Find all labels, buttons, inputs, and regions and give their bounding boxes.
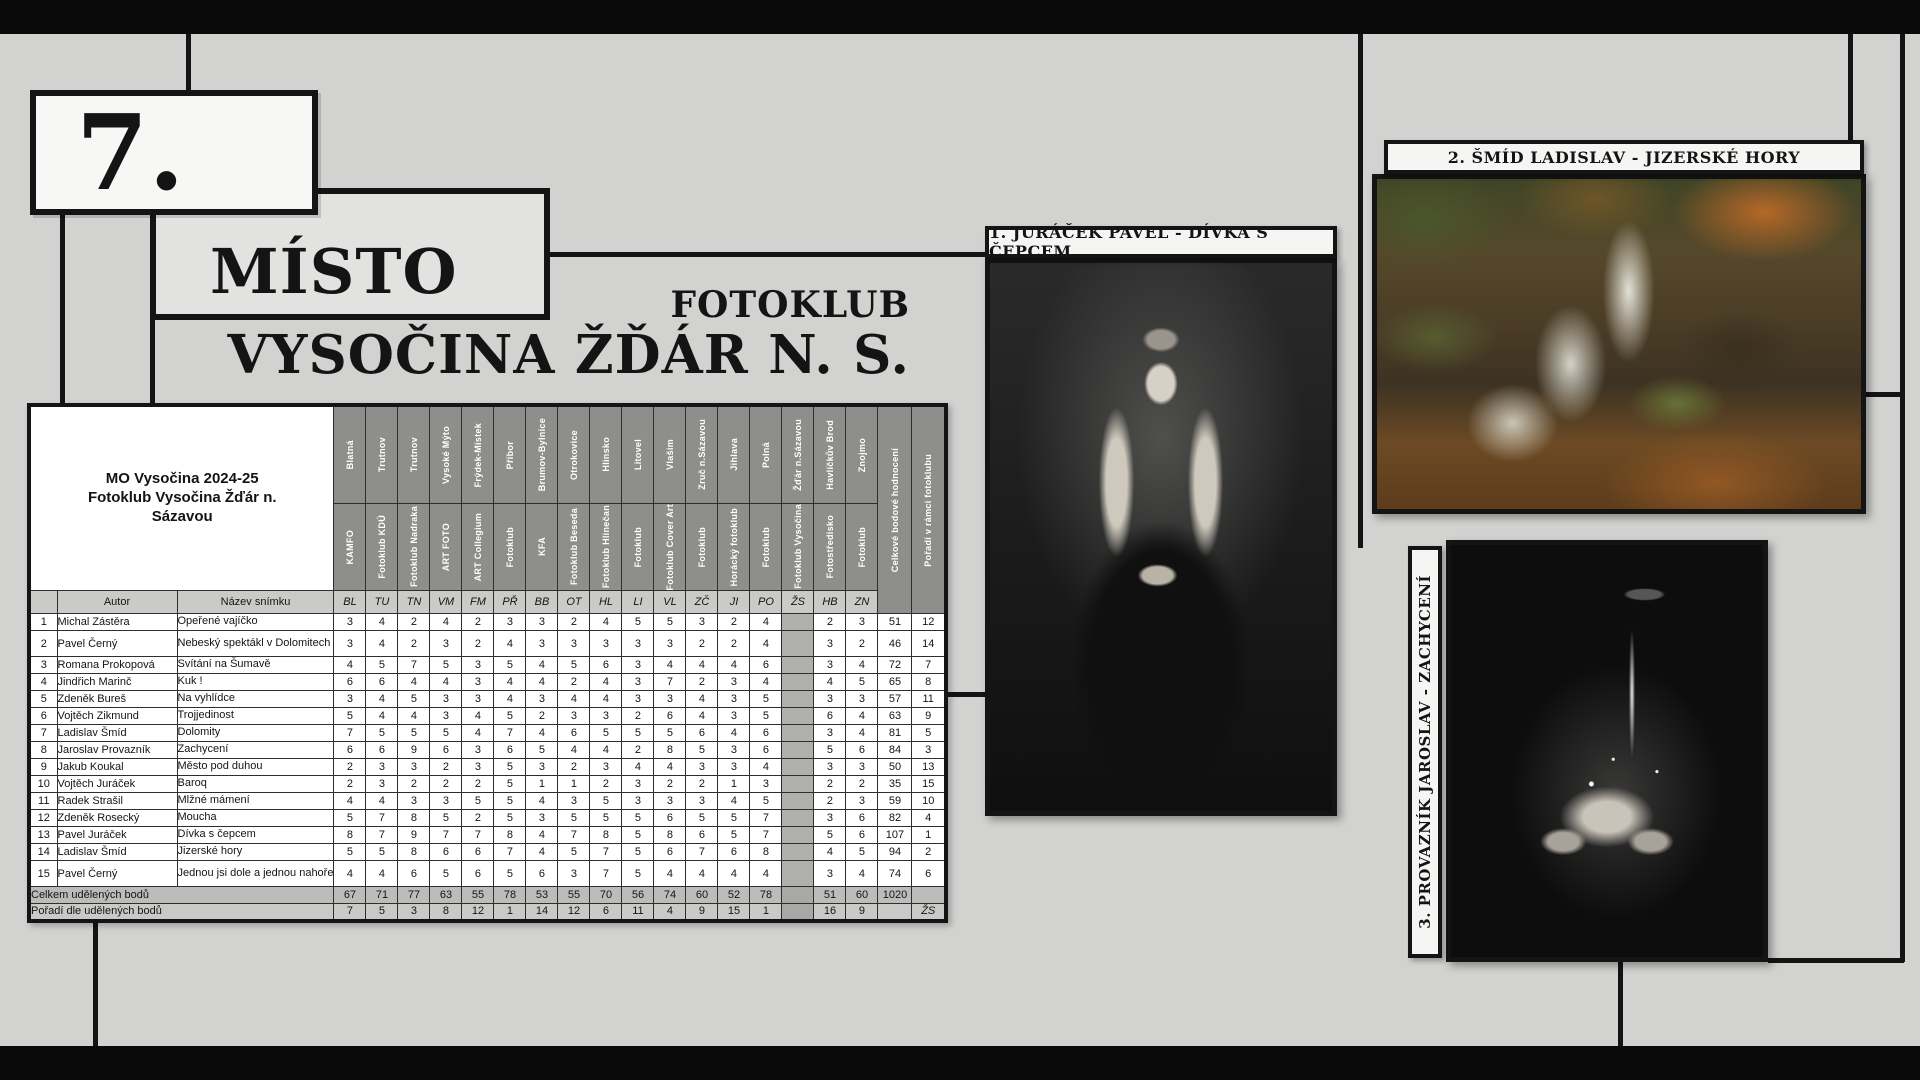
summary-value: 78 <box>750 887 782 904</box>
column-club-header: Fotoklub <box>622 503 654 591</box>
connector-line <box>1848 34 1853 140</box>
summary-value: 60 <box>846 887 878 904</box>
score-cell: 5 <box>398 691 430 708</box>
author-cell: Jakub Koukal <box>57 759 177 776</box>
score-cell: 7 <box>462 827 494 844</box>
table-row: 11 Radek Strašil Mlžné mámení44335543533… <box>29 793 946 810</box>
score-cell: 8 <box>590 827 622 844</box>
summary-value: 1 <box>494 904 526 921</box>
score-cell: 5 <box>366 657 398 674</box>
score-cell: 4 <box>846 861 878 887</box>
score-cell: 6 <box>846 742 878 759</box>
score-cell: 2 <box>846 776 878 793</box>
score-cell: 6 <box>846 827 878 844</box>
photo2-frame <box>1372 174 1866 514</box>
table-title-cell: MO Vysočina 2024-25 Fotoklub Vysočina Žď… <box>29 405 334 591</box>
score-cell: 2 <box>334 759 366 776</box>
score-cell: 5 <box>590 725 622 742</box>
score-cell: 5 <box>494 657 526 674</box>
score-cell: 3 <box>366 776 398 793</box>
row-number: 10 <box>29 776 57 793</box>
score-cell: 3 <box>622 674 654 691</box>
score-cell: 2 <box>846 631 878 657</box>
summary-value: 74 <box>654 887 686 904</box>
score-cell: 3 <box>462 742 494 759</box>
rank-cell: 10 <box>912 793 946 810</box>
score-cell: 4 <box>622 759 654 776</box>
summary-value: 9 <box>686 904 718 921</box>
score-cell: 5 <box>622 844 654 861</box>
score-cell: 4 <box>750 631 782 657</box>
score-cell: 3 <box>398 793 430 810</box>
rank-cell: 3 <box>912 742 946 759</box>
photo3-title-bar: 3. PROVAZNÍK JAROSLAV - ZACHYCENÍ <box>1408 546 1442 958</box>
score-cell: 5 <box>654 725 686 742</box>
score-cell: 3 <box>526 631 558 657</box>
score-cell: 3 <box>366 759 398 776</box>
column-city-header: Zruč n.Sázavou <box>686 405 718 503</box>
score-cell: 4 <box>654 657 686 674</box>
summary-value: 7 <box>334 904 366 921</box>
table-row: 15 Pavel Černý Jednou jsi dole a jednou … <box>29 861 946 887</box>
column-abbr: TU <box>366 591 398 614</box>
score-cell: 4 <box>846 657 878 674</box>
author-cell: Jaroslav Provazník <box>57 742 177 759</box>
score-cell: 7 <box>686 844 718 861</box>
score-cell: 3 <box>814 691 846 708</box>
photo3-frame <box>1446 540 1768 962</box>
column-city-header: Brumov-Bylnice <box>526 405 558 503</box>
score-cell: 6 <box>366 742 398 759</box>
score-cell: 4 <box>750 674 782 691</box>
score-cell: 6 <box>590 657 622 674</box>
score-cell: 3 <box>718 708 750 725</box>
score-cell: 4 <box>590 674 622 691</box>
photo1-frame <box>985 258 1337 816</box>
rank-cell: 9 <box>912 708 946 725</box>
score-cell: 2 <box>558 614 590 631</box>
score-cell: 7 <box>750 827 782 844</box>
photo-name-cell: Baroq <box>177 776 334 793</box>
column-club-header: Fotostředisko <box>814 503 846 591</box>
row-number: 11 <box>29 793 57 810</box>
score-cell: 5 <box>494 810 526 827</box>
total-cell: 46 <box>878 631 912 657</box>
home-club-empty-cell <box>782 657 814 674</box>
score-cell: 2 <box>462 776 494 793</box>
score-cell: 3 <box>462 759 494 776</box>
score-cell: 7 <box>590 861 622 887</box>
connector-line <box>186 34 191 92</box>
photo-name-cell: Opeřené vajíčko <box>177 614 334 631</box>
row-number: 7 <box>29 725 57 742</box>
score-cell: 4 <box>494 631 526 657</box>
score-cell: 3 <box>654 793 686 810</box>
column-club-header: KFA <box>526 503 558 591</box>
column-club-header: Fotoklub <box>846 503 878 591</box>
column-city-header: Žďár n.Sázavou <box>782 405 814 503</box>
score-cell: 9 <box>398 742 430 759</box>
score-cell: 3 <box>462 691 494 708</box>
score-cell: 5 <box>814 827 846 844</box>
score-cell: 5 <box>686 742 718 759</box>
score-cell: 4 <box>590 614 622 631</box>
score-cell: 5 <box>718 810 750 827</box>
home-club-empty-cell <box>782 861 814 887</box>
author-cell: Jindřich Marinč <box>57 674 177 691</box>
author-cell: Zdeněk Rosecký <box>57 810 177 827</box>
summary-value: 55 <box>558 887 590 904</box>
summary-total: 1020 <box>878 887 912 904</box>
score-cell: 3 <box>814 657 846 674</box>
score-cell: 8 <box>398 844 430 861</box>
score-cell: 6 <box>846 810 878 827</box>
score-cell: 6 <box>686 725 718 742</box>
score-cell: 6 <box>334 742 366 759</box>
rank-number: 7. <box>76 91 185 214</box>
score-cell: 3 <box>814 725 846 742</box>
photo1-image-girl-portrait <box>990 263 1332 811</box>
home-club-empty-cell <box>782 708 814 725</box>
score-cell: 2 <box>558 759 590 776</box>
score-cell: 2 <box>430 759 462 776</box>
column-abbr: PŘ <box>494 591 526 614</box>
score-cell: 6 <box>366 674 398 691</box>
summary-total <box>878 904 912 921</box>
summary-rank <box>912 887 946 904</box>
rank-cell: 11 <box>912 691 946 708</box>
total-cell: 65 <box>878 674 912 691</box>
summary-value: 60 <box>686 887 718 904</box>
connector-line <box>60 213 65 403</box>
score-cell: 3 <box>846 691 878 708</box>
score-cell: 2 <box>686 631 718 657</box>
score-cell: 3 <box>622 793 654 810</box>
author-column-label: Autor <box>57 591 177 614</box>
score-cell: 4 <box>462 708 494 725</box>
summary-label: Celkem udělených bodů <box>29 887 334 904</box>
table-row: 8 Jaroslav Provazník Zachycení6696365442… <box>29 742 946 759</box>
score-cell: 8 <box>750 844 782 861</box>
score-cell: 4 <box>718 725 750 742</box>
score-cell: 3 <box>526 810 558 827</box>
score-cell: 4 <box>494 691 526 708</box>
photo2-title: 2. ŠMÍD LADISLAV - JIZERSKÉ HORY <box>1448 148 1800 167</box>
score-cell: 3 <box>526 614 558 631</box>
column-city-header: Blatná <box>334 405 366 503</box>
score-cell: 5 <box>334 708 366 725</box>
score-cell: 7 <box>398 657 430 674</box>
rank-cell: 13 <box>912 759 946 776</box>
score-cell: 6 <box>814 708 846 725</box>
home-club-empty-cell <box>782 725 814 742</box>
home-club-empty-cell <box>782 674 814 691</box>
place-label: MÍSTO <box>210 235 458 308</box>
score-cell: 3 <box>718 742 750 759</box>
column-club-header: Fotoklub KDÚ <box>366 503 398 591</box>
author-cell: Ladislav Šmíd <box>57 725 177 742</box>
home-club-empty-cell <box>782 631 814 657</box>
score-cell: 6 <box>430 844 462 861</box>
author-cell: Ladislav Šmíd <box>57 844 177 861</box>
summary-value: 15 <box>718 904 750 921</box>
score-cell: 6 <box>334 674 366 691</box>
score-cell: 1 <box>558 776 590 793</box>
score-cell: 3 <box>622 776 654 793</box>
score-cell: 6 <box>750 742 782 759</box>
score-cell: 4 <box>398 674 430 691</box>
column-abbr: HB <box>814 591 846 614</box>
summary-value: 51 <box>814 887 846 904</box>
table-title-line1: MO Vysočina 2024-25 <box>31 470 333 489</box>
table-row: 9 Jakub Koukal Město pod duhou2332353234… <box>29 759 946 776</box>
author-cell: Pavel Juráček <box>57 827 177 844</box>
column-city-header: Hlinsko <box>590 405 622 503</box>
table-row: 12 Zdeněk Rosecký Moucha5785253555655736… <box>29 810 946 827</box>
total-cell: 59 <box>878 793 912 810</box>
score-cell: 5 <box>622 827 654 844</box>
score-cell: 5 <box>430 725 462 742</box>
home-club-empty-cell <box>782 793 814 810</box>
photo-name-cell: Svítání na Šumavě <box>177 657 334 674</box>
score-cell: 5 <box>494 793 526 810</box>
score-cell: 3 <box>430 708 462 725</box>
score-cell: 3 <box>398 759 430 776</box>
rank-cell: 2 <box>912 844 946 861</box>
score-cell: 3 <box>494 614 526 631</box>
score-cell: 3 <box>686 759 718 776</box>
score-cell: 5 <box>590 810 622 827</box>
score-cell: 8 <box>494 827 526 844</box>
score-cell: 2 <box>718 631 750 657</box>
score-cell: 3 <box>622 657 654 674</box>
score-cell: 4 <box>814 844 846 861</box>
total-cell: 94 <box>878 844 912 861</box>
score-cell: 2 <box>398 631 430 657</box>
rank-cell: 4 <box>912 810 946 827</box>
column-city-header: Znojmo <box>846 405 878 503</box>
photo1-title-bar: 1. JURÁČEK PAVEL - DÍVKA S ČEPCEM <box>985 226 1337 258</box>
score-cell: 5 <box>494 759 526 776</box>
column-club-header: Fotoklub <box>750 503 782 591</box>
photo1-title: 1. JURÁČEK PAVEL - DÍVKA S ČEPCEM <box>989 223 1333 261</box>
score-cell: 2 <box>814 793 846 810</box>
score-cell: 5 <box>622 614 654 631</box>
row-number: 6 <box>29 708 57 725</box>
score-cell: 5 <box>622 725 654 742</box>
row-number: 9 <box>29 759 57 776</box>
score-cell: 2 <box>622 742 654 759</box>
score-cell: 4 <box>590 742 622 759</box>
column-city-header: Vysoké Mýto <box>430 405 462 503</box>
photo2-title-bar: 2. ŠMÍD LADISLAV - JIZERSKÉ HORY <box>1384 140 1864 174</box>
rank-badge: 7. <box>30 90 318 215</box>
score-cell: 3 <box>334 631 366 657</box>
score-cell: 6 <box>654 708 686 725</box>
score-cell: 7 <box>494 844 526 861</box>
score-cell: 4 <box>526 844 558 861</box>
score-cell: 4 <box>430 674 462 691</box>
table-row: 1 Michal Zástěra Opeřené vajíčko34242332… <box>29 614 946 631</box>
photo-name-cell: Moucha <box>177 810 334 827</box>
score-cell: 3 <box>718 691 750 708</box>
score-cell: 6 <box>398 861 430 887</box>
column-abbr: ZN <box>846 591 878 614</box>
score-cell: 4 <box>718 793 750 810</box>
score-cell: 5 <box>526 742 558 759</box>
photo3-title: 3. PROVAZNÍK JAROSLAV - ZACHYCENÍ <box>1416 575 1434 929</box>
score-cell: 4 <box>462 725 494 742</box>
table-row: 4 Jindřich Marinč Kuk !66443442437234456… <box>29 674 946 691</box>
total-cell: 81 <box>878 725 912 742</box>
summary-value: 53 <box>526 887 558 904</box>
score-cell: 3 <box>526 759 558 776</box>
summary-value: 78 <box>494 887 526 904</box>
score-cell: 8 <box>334 827 366 844</box>
top-letterbox-bar <box>0 0 1920 34</box>
photo-name-cell: Město pod duhou <box>177 759 334 776</box>
summary-value: 16 <box>814 904 846 921</box>
score-cell: 4 <box>686 657 718 674</box>
connector-line <box>545 252 985 257</box>
score-cell: 4 <box>750 614 782 631</box>
table-row: 3 Romana Prokopová Svítání na Šumavě4575… <box>29 657 946 674</box>
column-abbr: FM <box>462 591 494 614</box>
author-cell: Vojtěch Juráček <box>57 776 177 793</box>
score-cell: 7 <box>590 844 622 861</box>
score-cell: 2 <box>814 776 846 793</box>
score-cell: 3 <box>462 674 494 691</box>
score-cell: 2 <box>590 776 622 793</box>
column-city-header: Trutnov <box>366 405 398 503</box>
score-cell: 4 <box>366 631 398 657</box>
author-cell: Radek Strašil <box>57 793 177 810</box>
score-cell: 6 <box>750 725 782 742</box>
photo-name-cell: Nebeský spektákl v Dolomitech <box>177 631 334 657</box>
score-cell: 5 <box>814 742 846 759</box>
score-cell: 6 <box>654 844 686 861</box>
row-number: 8 <box>29 742 57 759</box>
column-city-header: Příbor <box>494 405 526 503</box>
row-number: 2 <box>29 631 57 657</box>
score-cell: 4 <box>846 725 878 742</box>
score-cell: 3 <box>430 793 462 810</box>
column-city-header: Litovel <box>622 405 654 503</box>
score-cell: 2 <box>686 674 718 691</box>
column-abbr: BL <box>334 591 366 614</box>
summary-value: 14 <box>526 904 558 921</box>
score-cell: 6 <box>750 657 782 674</box>
total-cell: 74 <box>878 861 912 887</box>
score-cell: 6 <box>430 742 462 759</box>
score-cell: 6 <box>462 844 494 861</box>
score-cell: 2 <box>654 776 686 793</box>
summary-value: 6 <box>590 904 622 921</box>
table-row: 2 Pavel Černý Nebeský spektákl v Dolomit… <box>29 631 946 657</box>
summary-value: 63 <box>430 887 462 904</box>
score-cell: 5 <box>494 861 526 887</box>
column-club-header: Horácký fotoklub <box>718 503 750 591</box>
score-cell: 8 <box>654 827 686 844</box>
score-cell: 6 <box>494 742 526 759</box>
summary-label: Pořadí dle udělených bodů <box>29 904 334 921</box>
results-table: MO Vysočina 2024-25 Fotoklub Vysočina Žď… <box>27 403 948 923</box>
column-club-header: Fotoklub Nadraka <box>398 503 430 591</box>
score-cell: 3 <box>590 759 622 776</box>
score-cell: 3 <box>814 759 846 776</box>
score-cell: 5 <box>558 657 590 674</box>
photo-name-cell: Jizerské hory <box>177 844 334 861</box>
score-cell: 3 <box>334 614 366 631</box>
score-cell: 2 <box>686 776 718 793</box>
score-cell: 3 <box>718 674 750 691</box>
total-cell: 82 <box>878 810 912 827</box>
summary-row: Pořadí dle udělených bodů753812114126114… <box>29 904 946 921</box>
total-cell: 63 <box>878 708 912 725</box>
total-cell: 50 <box>878 759 912 776</box>
score-cell: 3 <box>430 631 462 657</box>
column-abbr: JI <box>718 591 750 614</box>
score-cell: 5 <box>334 844 366 861</box>
score-cell: 2 <box>462 631 494 657</box>
column-abbr: ZČ <box>686 591 718 614</box>
score-cell: 5 <box>430 810 462 827</box>
row-number: 14 <box>29 844 57 861</box>
score-cell: 3 <box>590 708 622 725</box>
score-cell: 7 <box>654 674 686 691</box>
photo-name-cell: Dívka s čepcem <box>177 827 334 844</box>
photo2-image-forest-waterfall <box>1377 179 1861 509</box>
table-row: 10 Vojtěch Juráček Baroq2322251123221322… <box>29 776 946 793</box>
summary-value: 9 <box>846 904 878 921</box>
row-number: 12 <box>29 810 57 827</box>
summary-value: 1 <box>750 904 782 921</box>
summary-value: 70 <box>590 887 622 904</box>
score-cell: 5 <box>398 725 430 742</box>
score-cell: 5 <box>846 844 878 861</box>
column-city-header: Vlašim <box>654 405 686 503</box>
summary-value: 12 <box>558 904 590 921</box>
row-number: 15 <box>29 861 57 887</box>
rank-cell: 12 <box>912 614 946 631</box>
connector-line <box>150 316 155 403</box>
summary-value: 55 <box>462 887 494 904</box>
table-row: 5 Zdeněk Bureš Na vyhlídce34533434433435… <box>29 691 946 708</box>
summary-value: 67 <box>334 887 366 904</box>
score-cell: 4 <box>686 691 718 708</box>
summary-value: 5 <box>366 904 398 921</box>
column-club-header: ART FOTO <box>430 503 462 591</box>
score-cell: 6 <box>654 810 686 827</box>
score-cell: 4 <box>654 759 686 776</box>
score-cell: 4 <box>334 657 366 674</box>
score-cell: 4 <box>366 793 398 810</box>
column-club-header: Fotoklub <box>494 503 526 591</box>
score-cell: 5 <box>750 691 782 708</box>
score-cell: 5 <box>846 674 878 691</box>
photo-column-label: Název snímku <box>177 591 334 614</box>
score-cell: 4 <box>558 742 590 759</box>
row-number: 13 <box>29 827 57 844</box>
column-abbr: VM <box>430 591 462 614</box>
row-number: 1 <box>29 614 57 631</box>
column-city-header: Jihlava <box>718 405 750 503</box>
rank-cell: 1 <box>912 827 946 844</box>
score-cell: 5 <box>366 725 398 742</box>
summary-value: 4 <box>654 904 686 921</box>
score-cell: 7 <box>750 810 782 827</box>
club-heading-line1: FOTOKLUB <box>600 284 910 326</box>
